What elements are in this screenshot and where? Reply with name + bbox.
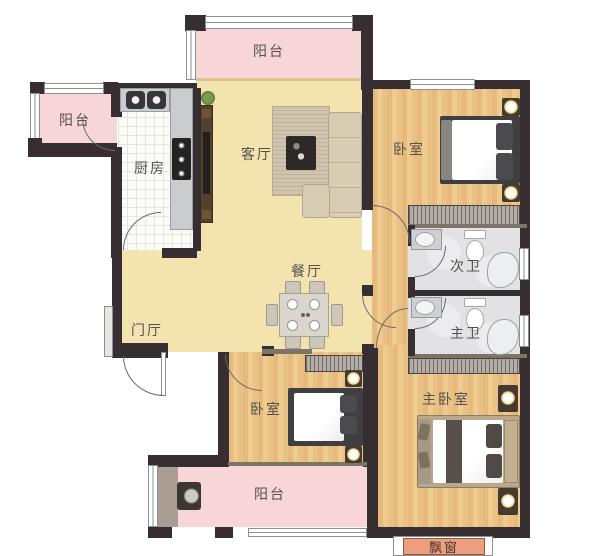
- wall-bedroom-bottom-top: [262, 349, 312, 354]
- bed-headboard: [504, 420, 518, 483]
- table-deco: [306, 313, 310, 317]
- wall-corner: [185, 15, 206, 31]
- wall-balcony-bottom-top: [148, 455, 228, 467]
- wall-bath-secondary-left-b: [408, 277, 415, 298]
- dining-chair: [266, 304, 278, 326]
- room-label-living-room: 客厅: [241, 144, 273, 164]
- wall-corner: [215, 527, 233, 538]
- wall-balcony-top-right: [361, 15, 373, 90]
- toilet-tank: [464, 298, 486, 307]
- burner-icon: [178, 170, 185, 177]
- floor-plan: 飘窗: [0, 0, 603, 556]
- pillow-icon: [340, 395, 357, 413]
- wall-bath-master-left: [408, 329, 415, 356]
- wall-bedrooms-divider: [363, 348, 378, 467]
- kitchen-sink-icon: [126, 91, 145, 109]
- lamp-icon: [347, 372, 360, 385]
- wall-east-exterior: [520, 80, 530, 538]
- bed-bench: [441, 120, 452, 180]
- pillow-icon: [486, 454, 502, 478]
- lamp-icon: [501, 494, 515, 508]
- room-label-bath-master: 主卫: [450, 323, 482, 343]
- window-balcony-bottom: [248, 528, 367, 537]
- wall-between-baths: [408, 290, 527, 296]
- kitchen-sink-icon: [147, 91, 166, 109]
- washbasin-bowl: [415, 232, 435, 247]
- room-label-balcony-left: 阳台: [59, 110, 91, 130]
- room-label-kitchen: 厨房: [134, 158, 166, 178]
- burner-icon: [178, 156, 185, 163]
- speaker-icon: [202, 109, 211, 118]
- shoe-cabinet: [104, 306, 113, 357]
- window-bedroom-top: [410, 79, 475, 90]
- pillow-icon: [340, 416, 357, 434]
- lamp-icon: [501, 391, 515, 405]
- table-deco: [301, 313, 305, 317]
- burner-icon: [178, 142, 185, 149]
- speaker-icon: [202, 210, 211, 219]
- window-balcony-top-left: [186, 30, 196, 80]
- stove-icon: [172, 138, 191, 180]
- bay-window: 飘窗: [403, 538, 485, 555]
- plate-icon: [287, 320, 298, 331]
- plate-icon: [309, 299, 320, 310]
- bed-runner: [446, 420, 462, 483]
- room-label-foyer: 门厅: [131, 320, 163, 340]
- window-balcony-bottom-left: [148, 465, 158, 527]
- dining-chair: [309, 336, 325, 349]
- room-label-balcony-top: 阳台: [253, 41, 285, 61]
- washing-machine-icon: [177, 482, 201, 510]
- pillow-icon: [486, 424, 502, 448]
- toilet-tank: [464, 230, 486, 239]
- wardrobe-bedroom-top: [408, 205, 520, 225]
- plant-icon: [201, 91, 215, 105]
- wall-living-bedroom-top: [362, 80, 373, 210]
- coffee-table: [286, 136, 316, 170]
- wall-bath-secondary-top: [408, 224, 527, 228]
- plate-icon: [287, 299, 298, 310]
- window-balcony-left: [44, 83, 104, 94]
- plate-icon: [309, 320, 320, 331]
- room-label-bath-secondary: 次卫: [450, 256, 482, 276]
- wall-kitchen-bottom-right: [162, 248, 197, 258]
- balcony-side-panel: [158, 465, 178, 527]
- wardrobe-bedroom-master: [408, 358, 520, 374]
- bay-window-label: 飘窗: [429, 537, 459, 556]
- dining-chair: [331, 304, 343, 326]
- window-balcony-top: [205, 16, 353, 29]
- lamp-icon: [504, 186, 518, 200]
- room-label-bedroom-bottom: 卧室: [250, 399, 282, 419]
- lamp-icon: [347, 448, 360, 461]
- sofa: [328, 112, 362, 218]
- door-arc-entry: [123, 356, 164, 396]
- wall-corner: [148, 527, 172, 538]
- window-bath-master: [519, 315, 529, 347]
- window-balcony-left-side: [30, 93, 40, 140]
- room-label-bedroom-top: 卧室: [393, 139, 425, 159]
- wall-kitchen-left-lower: [111, 147, 122, 252]
- wall-master-west: [367, 467, 378, 538]
- bed-mattress: [294, 393, 344, 441]
- edge-living-balcony: [196, 78, 361, 81]
- room-label-balcony-bottom: 阳台: [254, 484, 286, 504]
- lamp-icon: [504, 100, 518, 114]
- tv-icon: [203, 132, 210, 194]
- dining-chair: [285, 336, 301, 349]
- washbasin-bowl: [415, 300, 435, 315]
- pillow-icon: [496, 123, 513, 150]
- pillow-icon: [496, 153, 513, 180]
- sofa-chaise: [302, 184, 330, 218]
- room-label-dining-room: 餐厅: [291, 261, 323, 281]
- window-bath-secondary: [519, 248, 529, 280]
- room-label-bedroom-master: 主卧室: [422, 389, 470, 409]
